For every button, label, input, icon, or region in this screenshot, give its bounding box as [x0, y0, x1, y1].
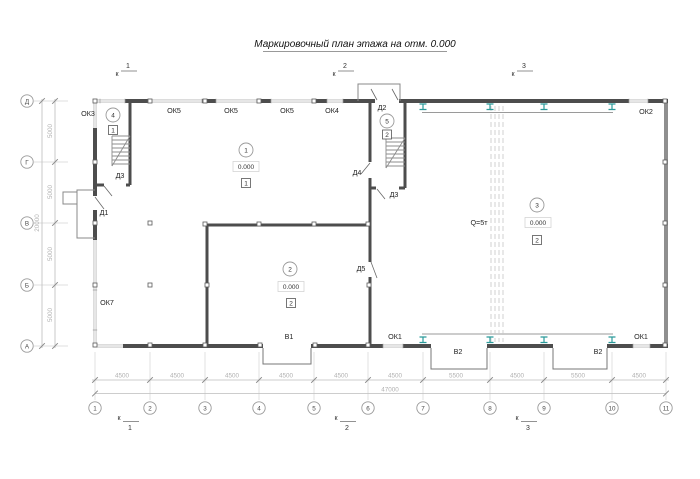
section-number: 1: [126, 63, 130, 70]
section-letter: к: [511, 71, 515, 78]
axis-grid-bottom: 1 2 3 4 5 6 7 8 9 10 11: [89, 352, 672, 414]
axis-col-label: 3: [203, 405, 207, 412]
floor-plan-sheet: Маркировочный план этажа на отм. 0.000 к…: [0, 0, 700, 474]
dim-segment: 4500: [279, 373, 294, 380]
dim-segment: 4500: [115, 373, 130, 380]
room-number: 2: [288, 266, 292, 273]
door-label-d1: Д1: [100, 208, 109, 217]
section-mark-k1-bottom: к 1: [117, 415, 139, 432]
porch-step: [63, 192, 77, 204]
axis-col-label: 4: [257, 405, 261, 412]
room-number: 4: [111, 112, 115, 119]
interior-walls: [95, 101, 405, 346]
window-label-ok4: ОК4: [325, 106, 339, 115]
section-marks-top: к 1 к 2 к 3: [115, 63, 533, 78]
door-d3-center-swing: [377, 189, 385, 199]
section-number: 2: [345, 425, 349, 432]
dim-segment: 5000: [47, 185, 54, 200]
section-mark-k2-top: к 2: [332, 63, 354, 78]
exterior-wall-solid-segments: [95, 101, 668, 346]
crane-capacity-label: Q=5т: [470, 218, 488, 227]
axis-col-label: 1: [93, 405, 97, 412]
window-label-ok1: ОК1: [634, 332, 648, 341]
room-4-marker: 4 1: [106, 108, 120, 135]
room-floor-type: 1: [111, 128, 115, 135]
axis-col-label: 11: [663, 405, 670, 412]
dimensions-bottom: 4500 4500 4500 4500 4500 4500 5500 4500 …: [92, 373, 669, 397]
room-number: 1: [244, 147, 248, 154]
section-number: 3: [526, 425, 530, 432]
opening-labels: ОК3 ОК5 ОК5 ОК5 ОК4 ОК2 ОК7 ОК1 ОК1 Д1 Д…: [81, 103, 653, 356]
room-markers: 1 0.000 1 2 0.000 2 3 0.000 2 4 1: [106, 108, 551, 308]
interior-door-openings: [104, 162, 399, 277]
crane-beam-icons-bottom: [420, 337, 616, 343]
section-letter: к: [334, 415, 338, 422]
axis-row-label: В: [25, 220, 29, 227]
dim-segment: 5500: [449, 373, 464, 380]
room-floor-type: 1: [244, 181, 248, 188]
dim-segment: 4500: [510, 373, 525, 380]
dim-segment: 4500: [388, 373, 403, 380]
section-mark-k3-bottom: к 3: [515, 415, 537, 432]
section-marks-bottom: к 1 к 2 к 3: [117, 415, 537, 432]
window-label-ok2: ОК2: [639, 107, 653, 116]
room-1-marker: 1 0.000 1: [233, 143, 259, 188]
window-label-ok3: ОК3: [81, 109, 95, 118]
column-markers: [93, 99, 667, 347]
door-label-d5: Д5: [357, 264, 366, 273]
axis-col-label: 7: [421, 405, 425, 412]
stairs-central: [386, 138, 405, 168]
axis-col-label: 6: [366, 405, 370, 412]
section-mark-k3-top: к 3: [511, 63, 533, 78]
gate-label-v1: В1: [285, 332, 294, 341]
dim-segment: 4500: [170, 373, 185, 380]
door-d3-left-swing: [104, 186, 112, 196]
axis-grid-left: Д Г В Б А: [21, 95, 68, 352]
door-label-d2: Д2: [378, 103, 387, 112]
room-floor-type: 2: [385, 132, 389, 139]
window-label-ok5: ОК5: [167, 106, 181, 115]
room-number: 5: [385, 118, 389, 125]
crane-beam-icons-top: [420, 104, 616, 110]
window-label-ok5: ОК5: [280, 106, 294, 115]
entry-porch-left: [63, 190, 95, 238]
axis-col-label: 8: [488, 405, 492, 412]
window-label-ok1: ОК1: [388, 332, 402, 341]
section-number: 1: [128, 425, 132, 432]
floor-plan-drawing: Маркировочный план этажа на отм. 0.000 к…: [0, 0, 700, 474]
door-label-d4: Д4: [353, 168, 362, 177]
section-letter: к: [515, 415, 519, 422]
section-number: 2: [343, 63, 347, 70]
axis-col-label: 2: [148, 405, 152, 412]
exterior-wall-core: [95, 101, 666, 346]
section-mark-k2-bottom: к 2: [334, 415, 356, 432]
dim-segment: 5000: [47, 124, 54, 139]
room-elevation: 0.000: [530, 220, 547, 227]
axis-col-label: 9: [542, 405, 546, 412]
section-letter: к: [115, 71, 119, 78]
dim-total: 20000: [34, 214, 41, 232]
axis-row-label: Г: [25, 159, 29, 166]
room-2-marker: 2 0.000 2: [278, 262, 304, 308]
axis-row-label: Д: [25, 98, 30, 105]
room-5-marker: 5 2: [380, 114, 394, 139]
dim-segment: 5500: [571, 373, 586, 380]
dim-segment: 5000: [47, 308, 54, 323]
walls: [93, 99, 668, 348]
crane-runway-axis-dashed: [491, 106, 503, 342]
axis-col-label: 10: [608, 405, 616, 412]
room-floor-type: 2: [535, 238, 539, 245]
dim-segment: 4500: [632, 373, 647, 380]
section-letter: к: [117, 415, 121, 422]
window-label-ok7: ОК7: [100, 298, 114, 307]
section-mark-k1-top: к 1: [115, 63, 137, 78]
axis-row-label: Б: [25, 282, 29, 289]
section-letter: к: [332, 71, 336, 78]
exterior-wall-outline: [95, 101, 666, 346]
gate-label-v2: В2: [594, 347, 603, 356]
axis-col-label: 5: [312, 405, 316, 412]
door-label-d3: Д3: [116, 171, 125, 180]
room-elevation: 0.000: [283, 284, 300, 291]
gate-aprons: [263, 348, 607, 369]
dim-segment: 5000: [47, 247, 54, 262]
room-3-marker: 3 0.000 2: [525, 198, 551, 245]
door-label-d3: Д3: [390, 190, 399, 199]
page-title: Маркировочный план этажа на отм. 0.000: [254, 39, 456, 50]
drawing-title: Маркировочный план этажа на отм. 0.000: [254, 39, 456, 52]
dim-total: 47000: [381, 387, 399, 394]
stairs-left: [112, 136, 130, 166]
section-number: 3: [522, 63, 526, 70]
room-floor-type: 2: [289, 301, 293, 308]
room-elevation: 0.000: [238, 164, 255, 171]
room-number: 3: [535, 202, 539, 209]
dim-segment: 4500: [334, 373, 349, 380]
window-label-ok5: ОК5: [224, 106, 238, 115]
dimensions-left: 5000 5000 5000 5000 20000: [34, 98, 58, 349]
gate-label-v2: В2: [454, 347, 463, 356]
dim-segment: 4500: [225, 373, 240, 380]
crane-runway: Q=5т: [420, 104, 616, 343]
gate-v1-apron: [263, 348, 311, 364]
